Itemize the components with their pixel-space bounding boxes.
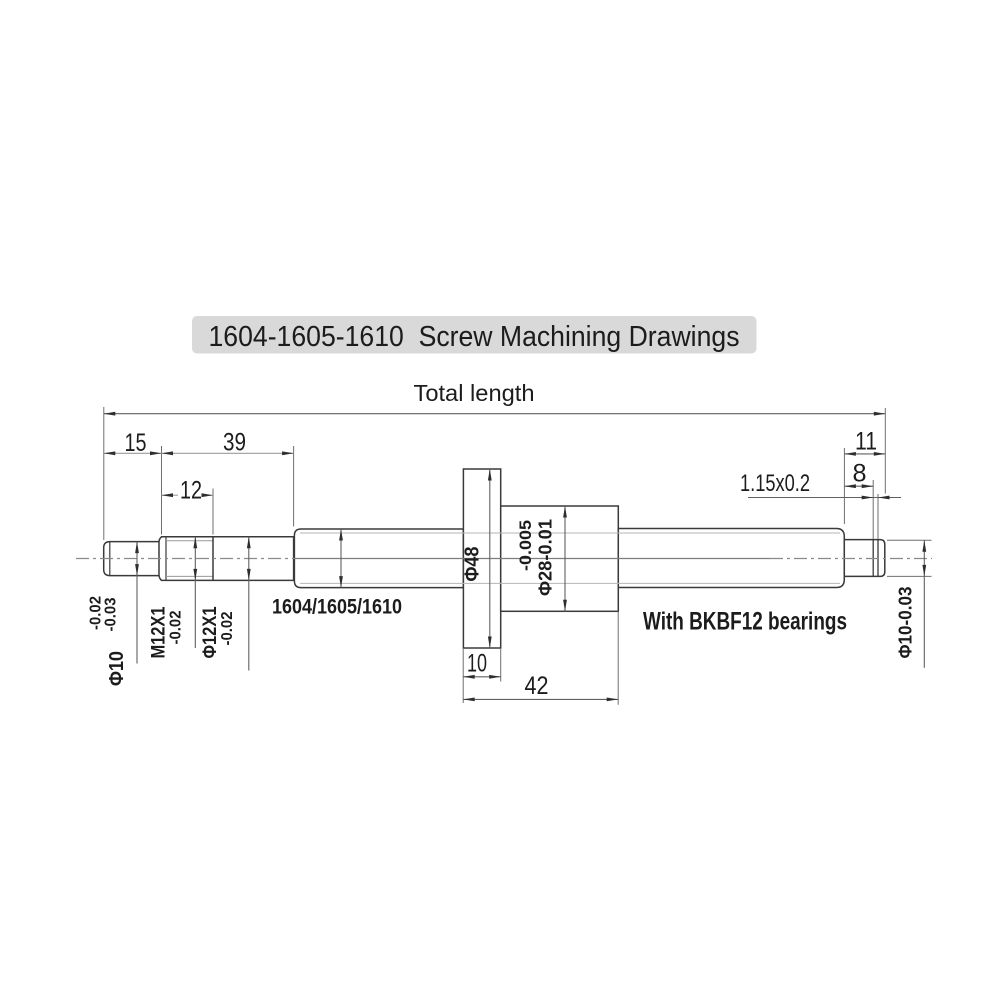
- svg-text:1604-1605-1610 Screw Machinin: 1604-1605-1610 Screw Machining Drawings: [209, 321, 740, 353]
- svg-text:1.15x0.2: 1.15x0.2: [740, 470, 810, 497]
- svg-text:Φ10-0.03: Φ10-0.03: [896, 587, 916, 659]
- svg-text:8: 8: [853, 460, 867, 488]
- svg-text:Φ28-0.01: Φ28-0.01: [536, 519, 556, 596]
- svg-text:-0.02: -0.02: [168, 610, 185, 644]
- svg-text:11: 11: [855, 428, 877, 456]
- svg-text:12: 12: [180, 477, 202, 505]
- svg-text:42: 42: [525, 672, 549, 700]
- svg-text:M12X1: M12X1: [149, 606, 170, 658]
- svg-text:1604/1605/1610: 1604/1605/1610: [272, 596, 402, 619]
- svg-text:39: 39: [223, 429, 246, 457]
- svg-text:-0.02: -0.02: [219, 611, 236, 645]
- svg-text:-0.005: -0.005: [516, 520, 535, 571]
- svg-text:-0.03: -0.03: [103, 597, 120, 631]
- svg-text:Φ10: Φ10: [106, 651, 128, 686]
- svg-text:15: 15: [125, 429, 147, 457]
- svg-text:Φ12X1: Φ12X1: [200, 606, 221, 658]
- svg-text:10: 10: [467, 650, 487, 678]
- svg-text:With BKBF12 bearings: With BKBF12 bearings: [643, 608, 847, 636]
- svg-text:Total length: Total length: [414, 380, 535, 406]
- svg-text:Φ48: Φ48: [462, 547, 484, 582]
